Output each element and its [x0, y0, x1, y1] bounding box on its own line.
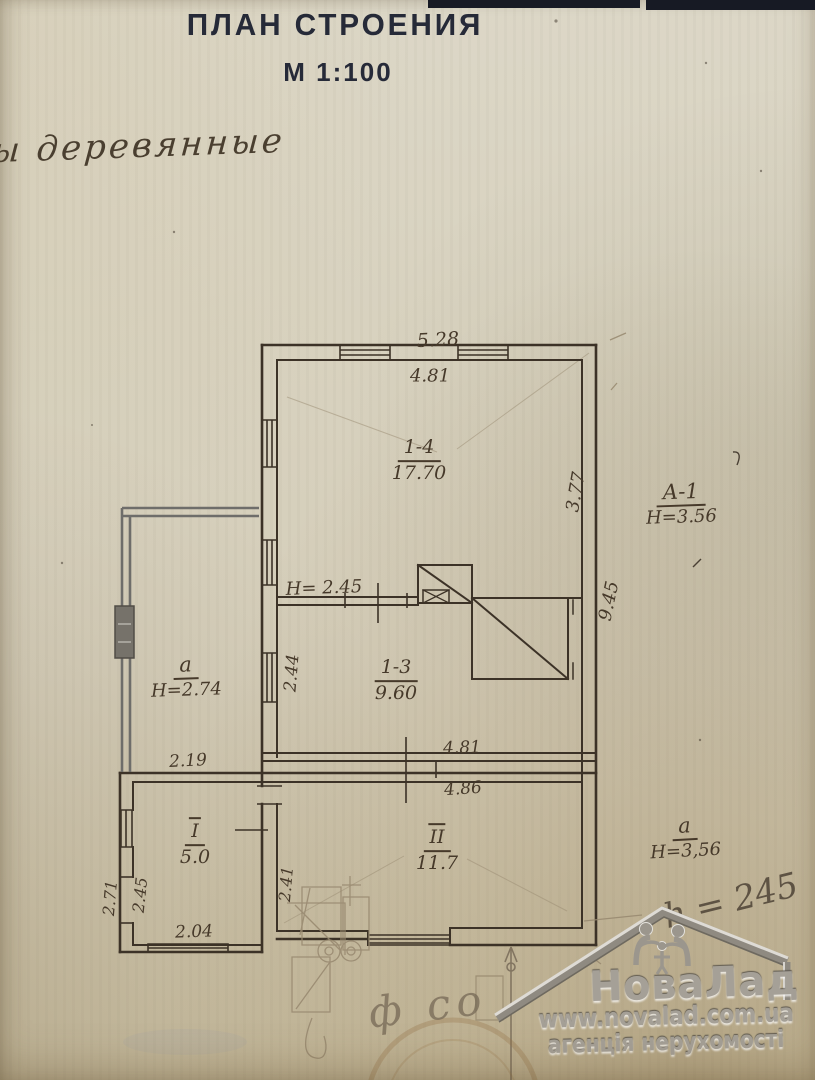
scan-edge-bar: [646, 0, 815, 10]
scanned-floor-plan-page: ПЛАН СТРОЕНИЯ М 1:100 ы деревянные: [0, 0, 815, 1080]
agency-watermark-graphic: [0, 0, 815, 1080]
scan-edge-bar: [428, 0, 640, 8]
